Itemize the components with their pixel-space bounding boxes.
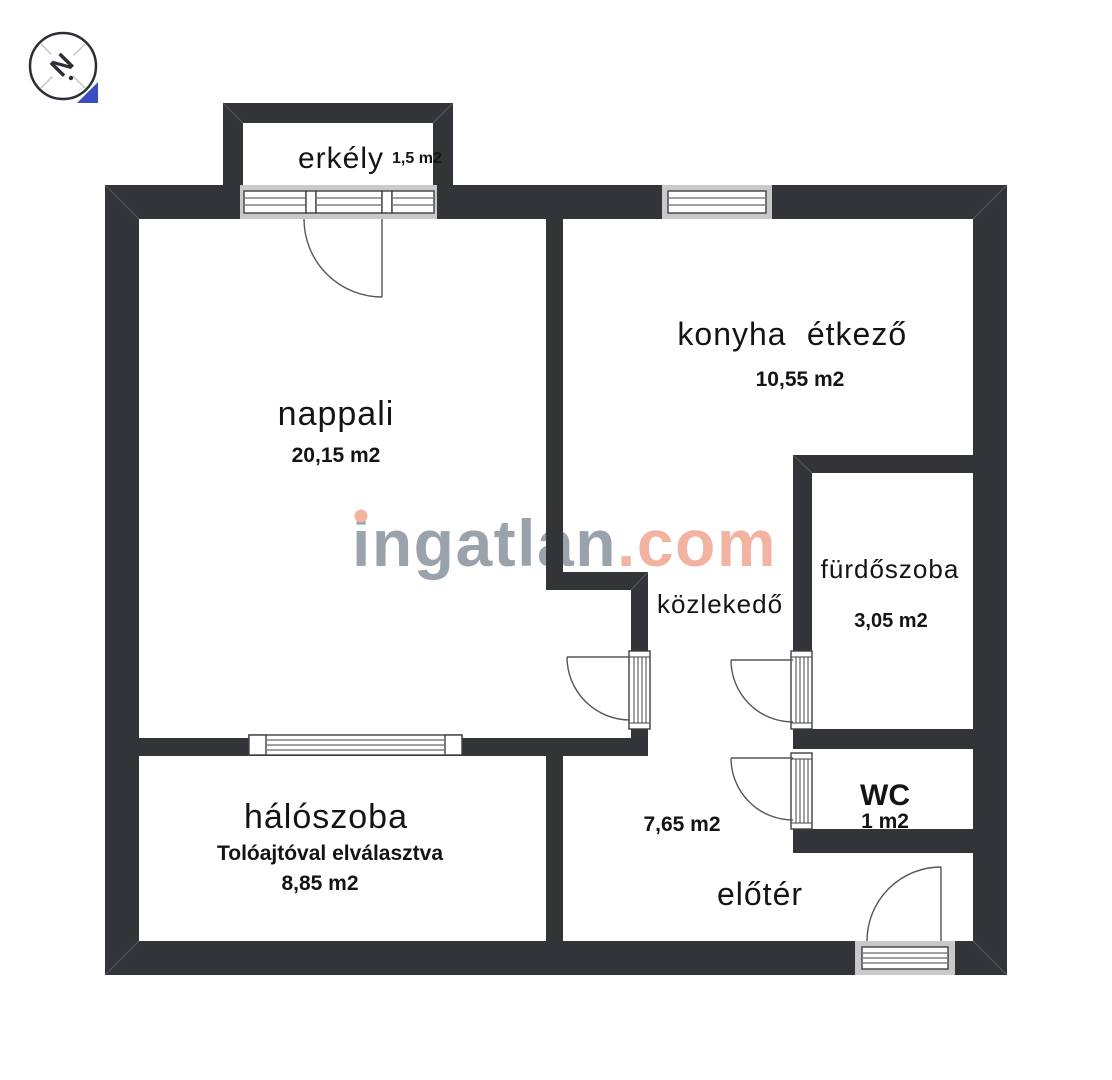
room-label-wc: WC: [860, 779, 910, 812]
watermark-tld: .com: [617, 506, 777, 580]
wall-balcony-top: [223, 103, 453, 123]
bathroom-door-frame-box: [791, 651, 812, 729]
kitchen-window: [662, 185, 772, 219]
room-label-kozlekedo: közlekedő: [657, 589, 783, 619]
wc-door-frame: [791, 753, 812, 829]
balcony-pane-middle: [316, 191, 382, 213]
watermark: ingatlan.com: [352, 506, 777, 580]
sliding-door: [249, 735, 462, 755]
wall-bathroom-wc: [793, 729, 973, 749]
wall-outer-right: [973, 185, 1007, 975]
room-area-nappali: 20,15 m2: [292, 444, 381, 467]
compass-tick: [69, 76, 73, 80]
wall-livingroom-kitchen: [546, 219, 563, 572]
bathroom-door-frame: [791, 651, 812, 729]
balcony-pane-right: [392, 191, 434, 213]
sliding-door-cap-left: [249, 735, 266, 755]
hall-door-frame-box: [629, 651, 650, 729]
room-area-wc: 1 m2: [861, 810, 909, 833]
entrance-door-swing: [867, 867, 941, 941]
room-label-nappali: nappali: [278, 395, 395, 433]
wall-hall-horizontal: [546, 572, 648, 590]
balcony-window: [240, 185, 437, 219]
watermark-text: ingatlan.com: [352, 506, 777, 580]
room-label-furdoszoba: fürdőszoba: [821, 554, 960, 584]
hall-door-swing: [567, 657, 630, 720]
wc-door-frame-box: [791, 753, 812, 829]
wall-bathroom-top: [793, 455, 1007, 473]
entrance-frame: [855, 941, 955, 975]
balcony-door-swing: [304, 219, 382, 297]
kitchen-window-pane: [668, 191, 766, 213]
room-label-etkezo: étkező: [807, 316, 907, 352]
wall-outer-left: [105, 185, 139, 975]
wall-hall-vertical: [631, 590, 648, 651]
room-area-haloszoba: 8,85 m2: [281, 872, 358, 895]
room-area-erkely: 1,5 m2: [392, 150, 442, 167]
balcony-mullion-left: [306, 191, 316, 213]
balcony-mullion-right: [382, 191, 392, 213]
balcony-pane-left: [244, 191, 306, 213]
room-note-haloszoba: Tolóajtóval elválasztva: [217, 842, 443, 865]
wall-bedroom-foyer: [546, 738, 563, 975]
watermark-i-dot: [355, 510, 368, 523]
room-label-erkely: erkély: [298, 142, 384, 175]
floorplan-svg: ingatlan.com: [0, 0, 1112, 1080]
room-area-konyha: 10,55 m2: [756, 368, 845, 391]
door-frames: [629, 651, 812, 829]
room-area-eloter: 7,65 m2: [643, 813, 720, 836]
watermark-name: ingatlan: [352, 506, 617, 580]
room-label-haloszoba: hálószoba: [244, 798, 408, 836]
sliding-door-cap-right: [445, 735, 462, 755]
room-label-konyha: konyha: [677, 316, 786, 352]
room-label-eloter: előtér: [717, 876, 803, 912]
compass-icon: N: [30, 33, 98, 103]
wc-door-swing: [731, 758, 793, 820]
bathroom-door-swing: [731, 660, 793, 722]
hall-door-frame: [629, 651, 650, 729]
floorplan-page: ingatlan.com: [0, 0, 1112, 1080]
wall-bathroom-left: [793, 455, 812, 651]
wall-balcony-right: [433, 103, 453, 185]
room-area-furdoszoba: 3,05 m2: [854, 610, 927, 632]
